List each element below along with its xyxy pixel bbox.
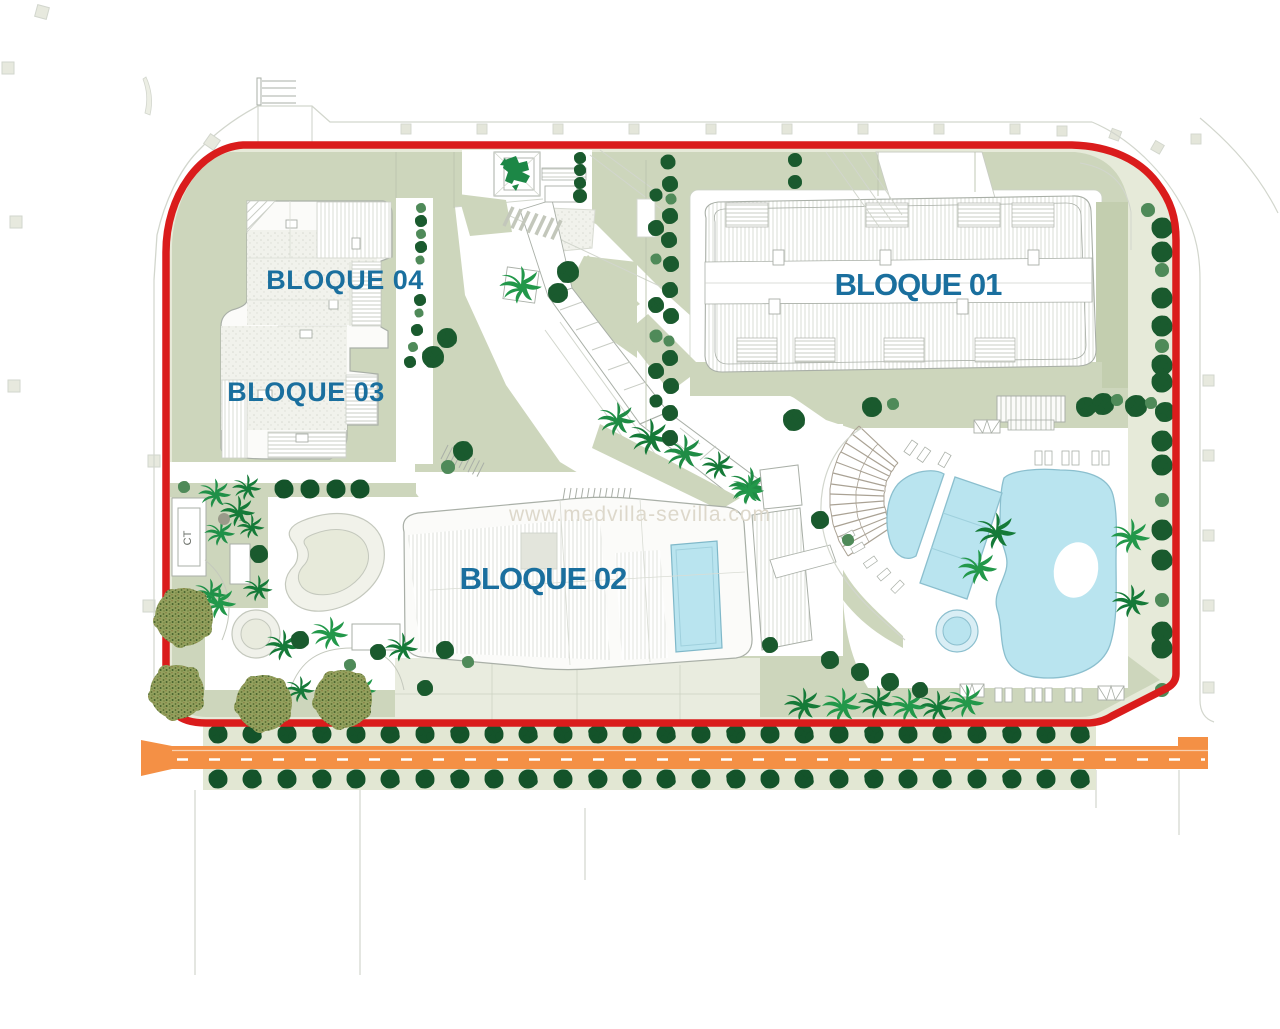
svg-text:BLOQUE 02: BLOQUE 02 bbox=[460, 561, 627, 596]
svg-text:www.medvilla-sevilla.com: www.medvilla-sevilla.com bbox=[508, 503, 771, 526]
svg-text:BLOQUE 01: BLOQUE 01 bbox=[835, 267, 1002, 302]
svg-text:BLOQUE 03: BLOQUE 03 bbox=[227, 377, 385, 407]
svg-text:CT: CT bbox=[182, 530, 194, 545]
svg-text:BLOQUE 04: BLOQUE 04 bbox=[266, 265, 424, 295]
